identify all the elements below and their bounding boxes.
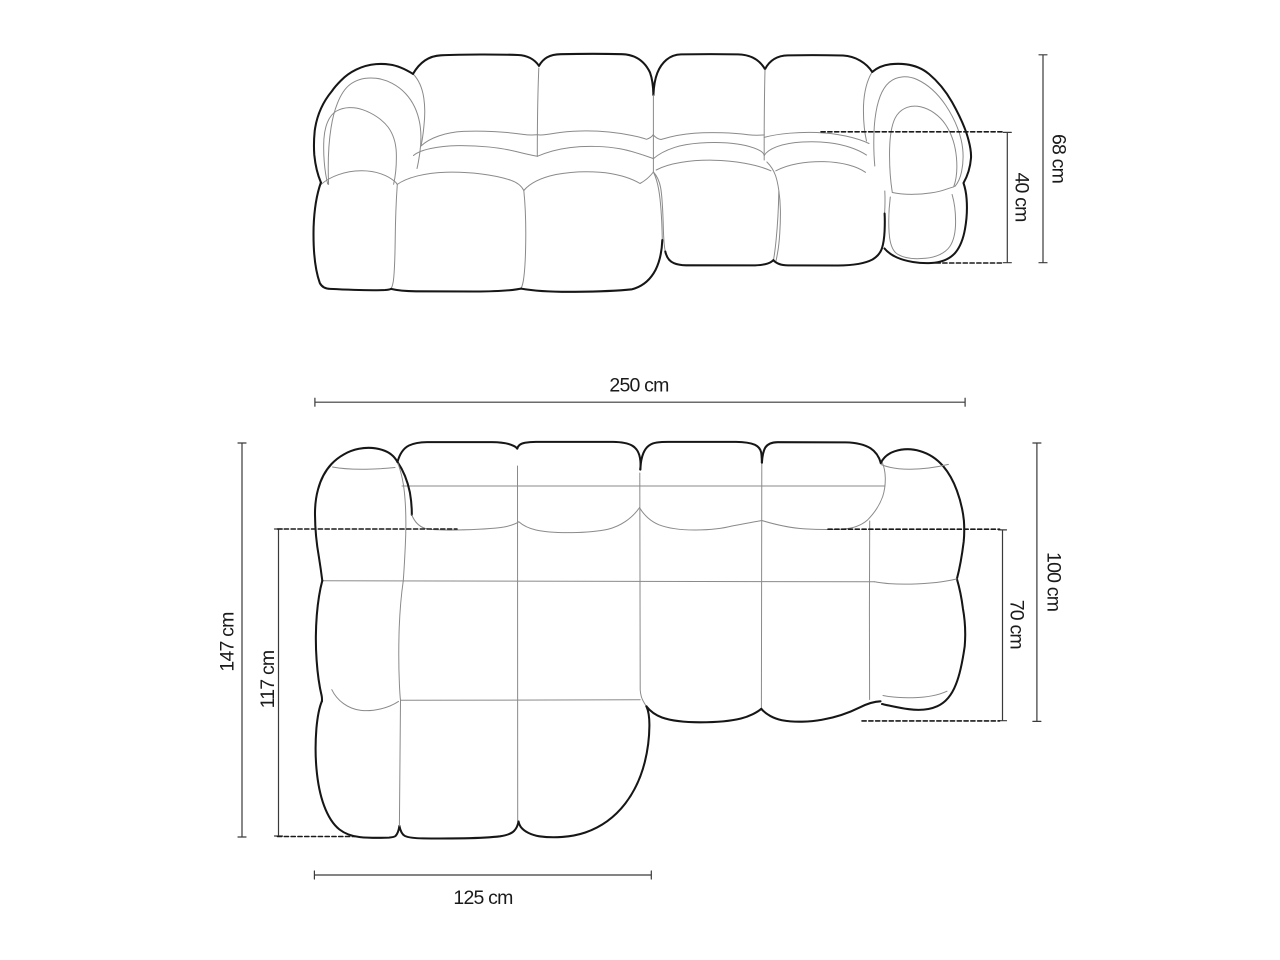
svg-text:117 cm: 117 cm (257, 651, 279, 709)
svg-text:125 cm: 125 cm (453, 887, 512, 909)
svg-text:250 cm: 250 cm (609, 375, 668, 397)
svg-text:40 cm: 40 cm (1011, 172, 1033, 221)
svg-text:68 cm: 68 cm (1048, 134, 1070, 183)
svg-text:147 cm: 147 cm (217, 612, 239, 671)
svg-text:70 cm: 70 cm (1006, 600, 1028, 649)
svg-text:100 cm: 100 cm (1042, 552, 1064, 611)
